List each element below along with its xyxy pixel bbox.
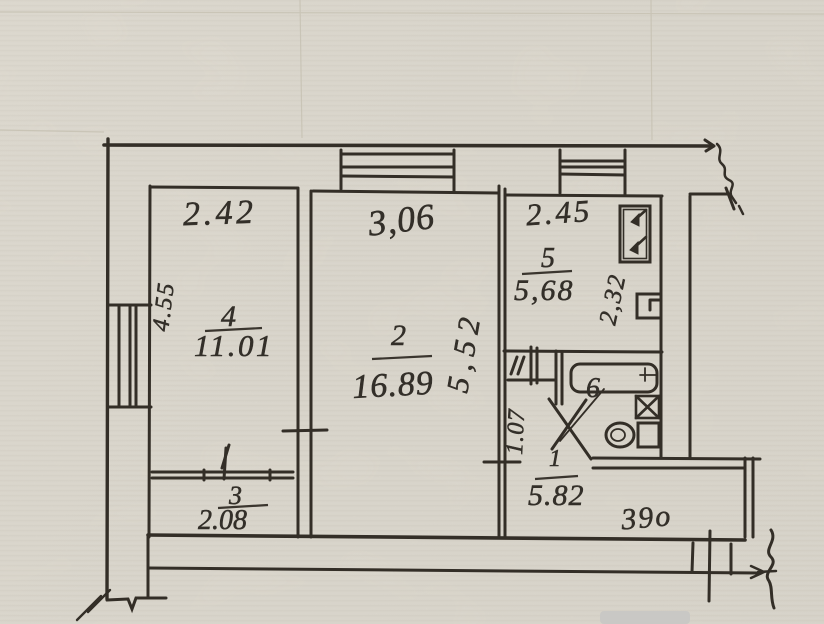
svg-text:39o: 39o	[619, 499, 674, 536]
svg-text:2: 2	[391, 319, 406, 352]
svg-text:3,06: 3,06	[365, 196, 437, 244]
svg-text:2.45: 2.45	[525, 193, 594, 233]
svg-text:2.42: 2.42	[182, 194, 257, 234]
svg-text:1: 1	[549, 446, 561, 472]
svg-text:5,68: 5,68	[514, 274, 575, 307]
svg-text:11.01: 11.01	[194, 328, 274, 363]
svg-text:2.08: 2.08	[198, 505, 247, 536]
svg-text:6: 6	[586, 373, 600, 404]
svg-text:1.07: 1.07	[502, 408, 530, 455]
svg-text:5: 5	[541, 243, 555, 274]
svg-text:16.89: 16.89	[351, 365, 434, 406]
svg-text:5.82: 5.82	[528, 479, 585, 512]
